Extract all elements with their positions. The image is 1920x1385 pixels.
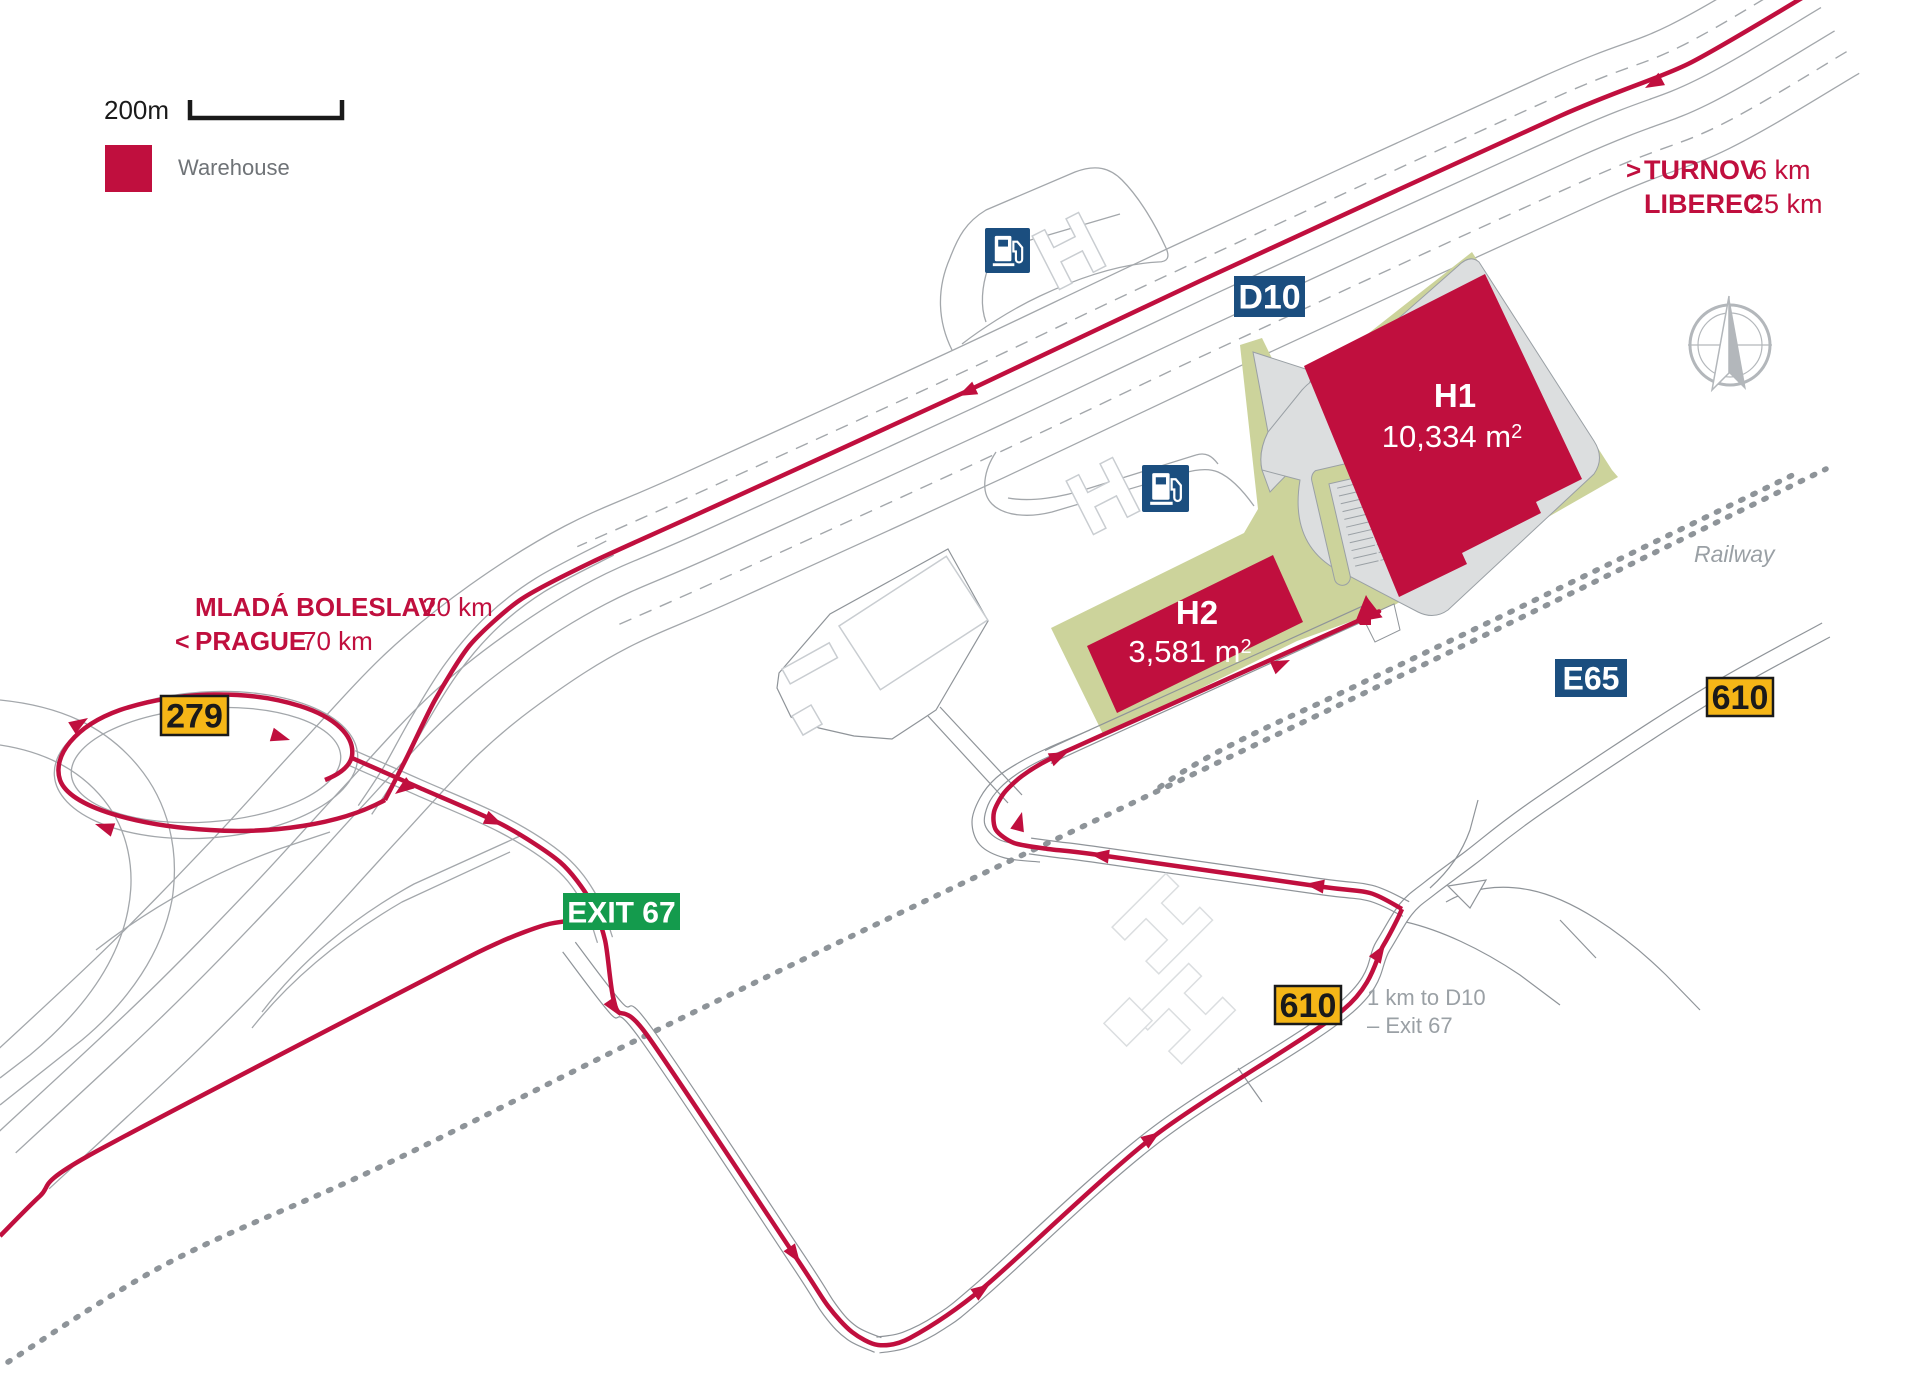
svg-text:E65: E65 xyxy=(1563,661,1620,697)
svg-text:20 km: 20 km xyxy=(422,592,493,622)
svg-text:H1: H1 xyxy=(1434,377,1476,414)
svg-text:>: > xyxy=(1626,155,1641,185)
svg-text:LIBEREC: LIBEREC xyxy=(1644,189,1763,219)
svg-text:H2: H2 xyxy=(1176,594,1218,631)
svg-text:200m: 200m xyxy=(104,95,169,125)
svg-text:610: 610 xyxy=(1280,987,1337,1025)
svg-text:279: 279 xyxy=(166,698,223,736)
svg-text:610: 610 xyxy=(1712,679,1769,717)
svg-text:6 km: 6 km xyxy=(1752,155,1811,185)
svg-text:25 km: 25 km xyxy=(1749,189,1823,219)
svg-text:PRAGUE: PRAGUE xyxy=(195,626,306,656)
svg-text:MLADÁ BOLESLAV: MLADÁ BOLESLAV xyxy=(195,592,436,622)
svg-text:Railway: Railway xyxy=(1694,541,1776,567)
svg-text:D10: D10 xyxy=(1238,279,1300,317)
svg-text:3,581 m2: 3,581 m2 xyxy=(1128,634,1251,669)
svg-text:EXIT 67: EXIT 67 xyxy=(567,896,675,929)
svg-text:– Exit 67: – Exit 67 xyxy=(1367,1013,1453,1038)
svg-text:TURNOV: TURNOV xyxy=(1644,155,1758,185)
svg-text:<: < xyxy=(175,628,190,656)
svg-text:Warehouse: Warehouse xyxy=(178,155,290,180)
svg-text:1 km to D10: 1 km to D10 xyxy=(1367,985,1486,1010)
svg-text:70 km: 70 km xyxy=(302,626,373,656)
svg-text:10,334 m2: 10,334 m2 xyxy=(1382,419,1522,454)
